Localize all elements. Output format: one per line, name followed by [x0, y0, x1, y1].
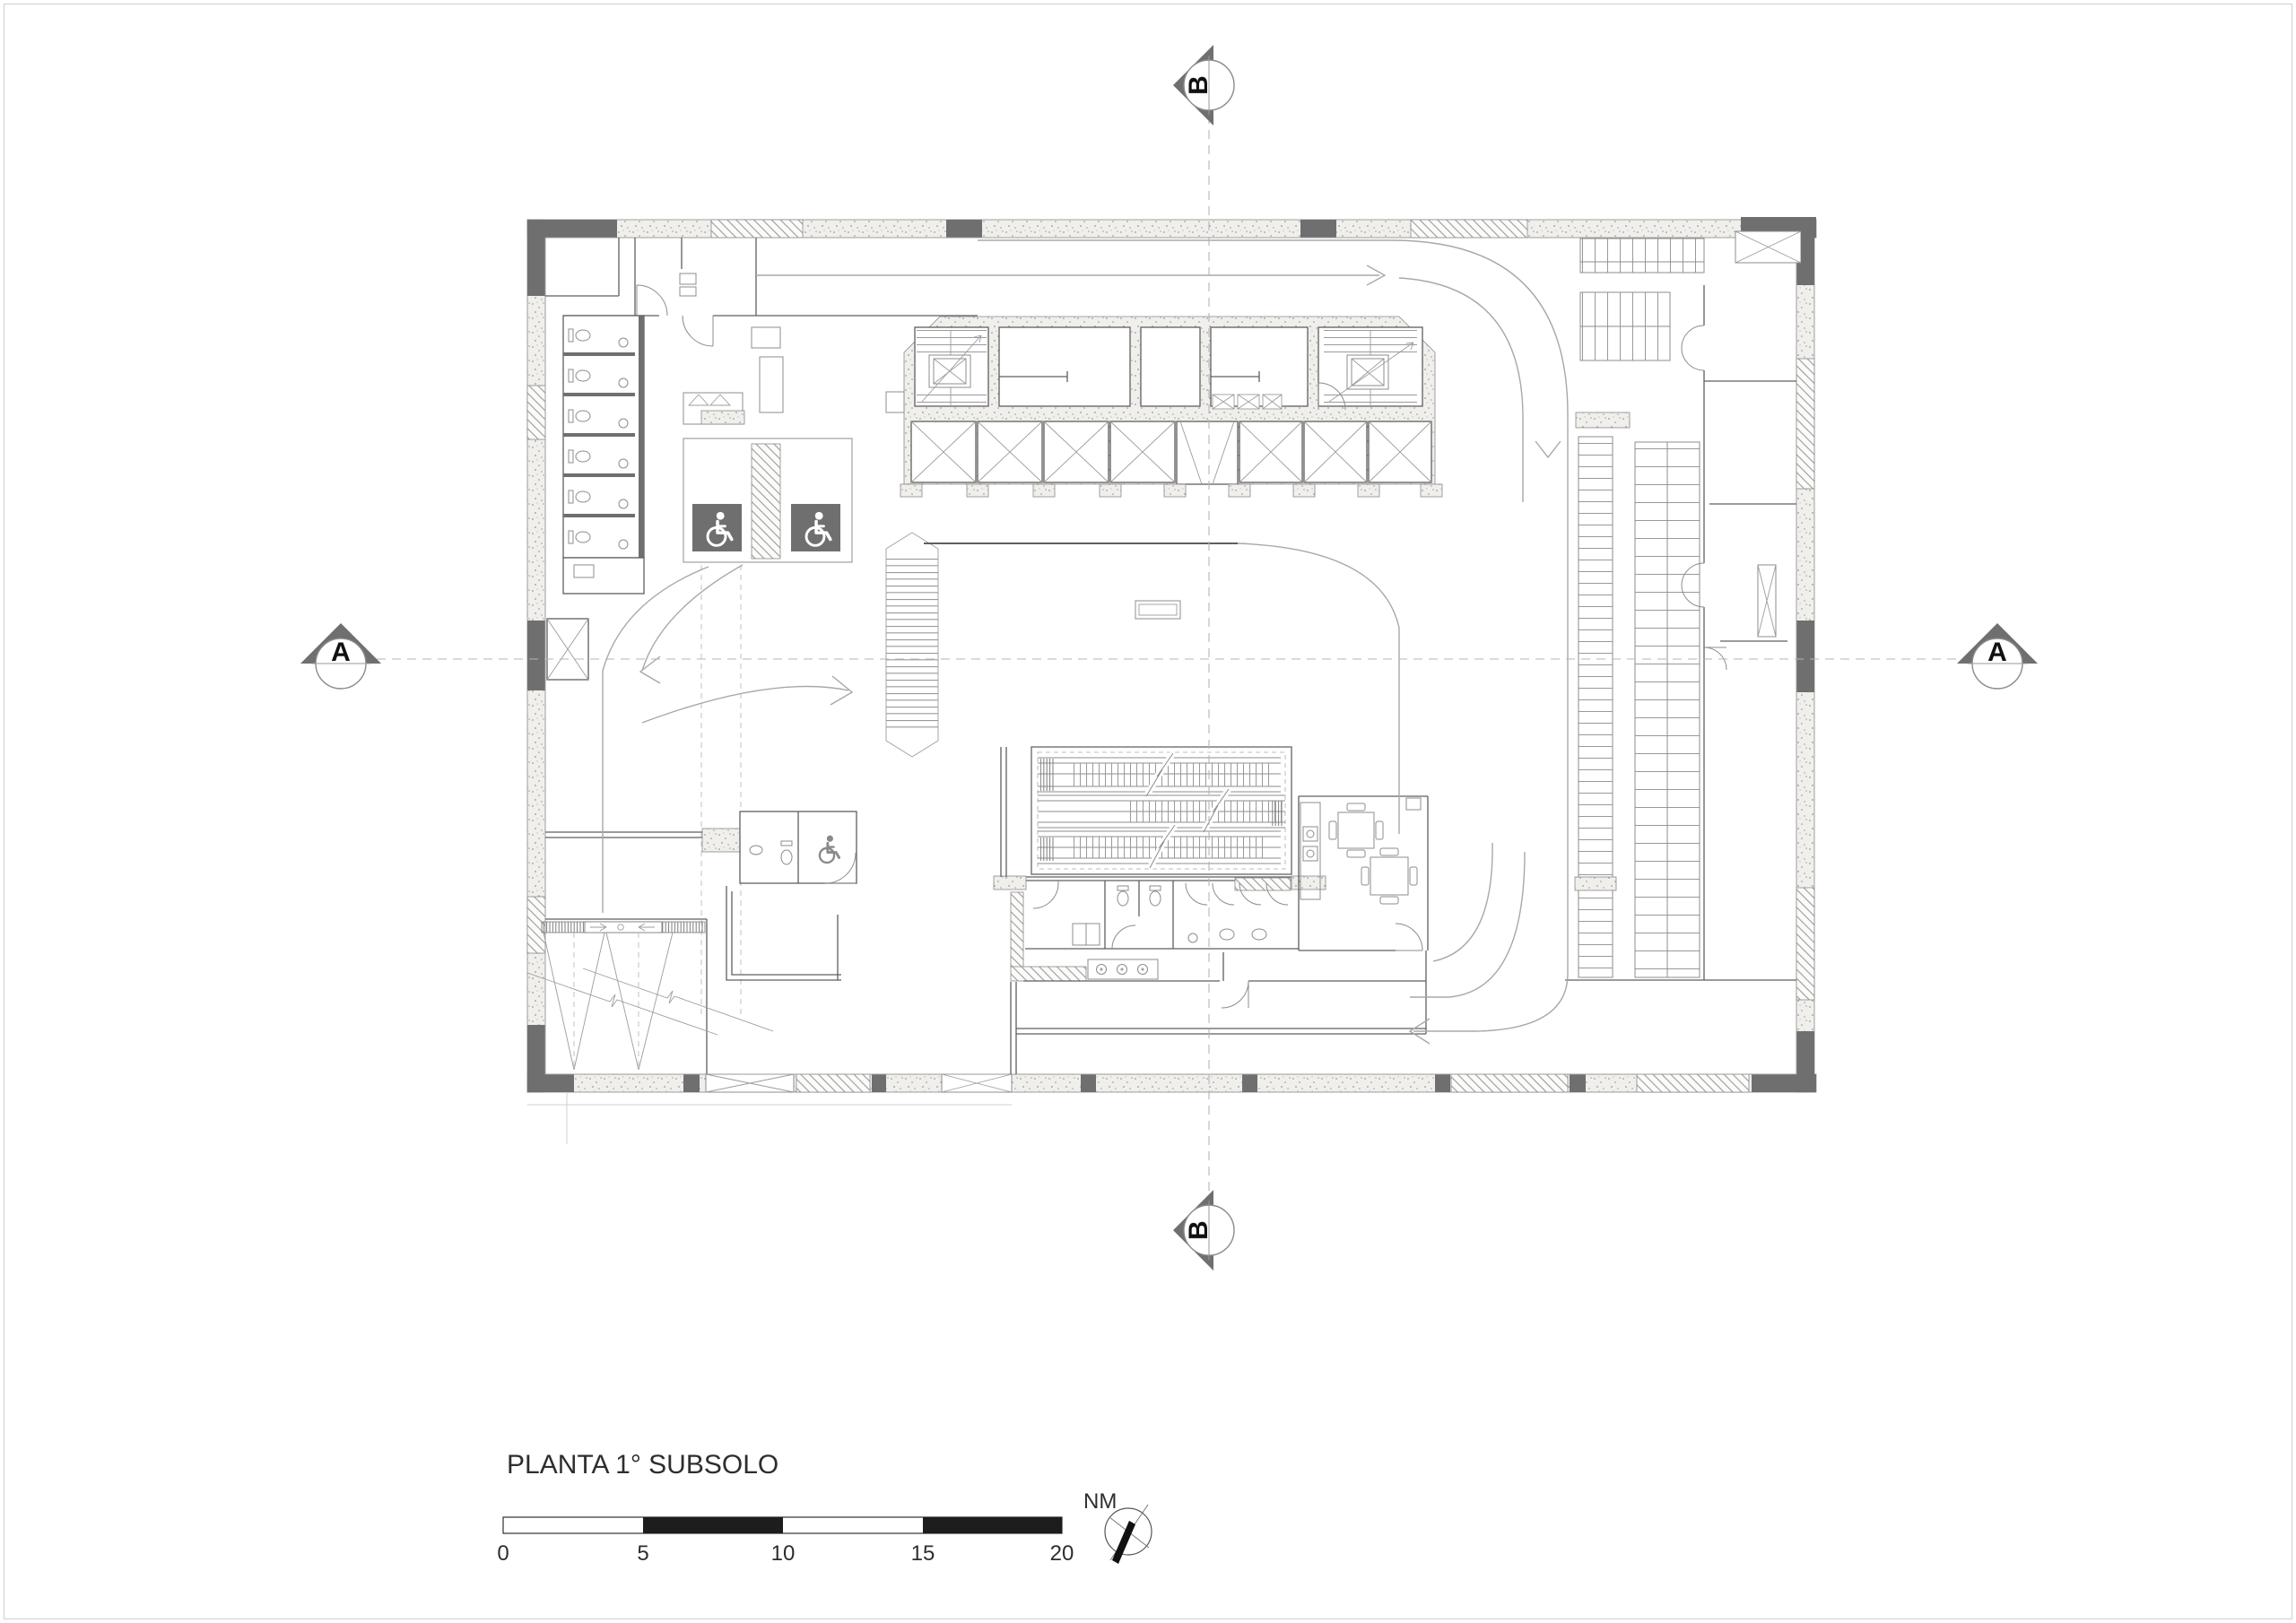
- escalators: [1031, 747, 1291, 874]
- section-marker-a-left: A: [300, 623, 381, 689]
- door-arc: [1222, 981, 1248, 1008]
- plan-title: PLANTA 1° SUBSOLO: [507, 1450, 778, 1480]
- crosswalk: [886, 533, 938, 757]
- section-marker-b-bottom: B: [1173, 1190, 1234, 1271]
- ventilation-shafts: [527, 919, 773, 1074]
- scale-tick: 20: [1050, 1541, 1074, 1566]
- right-rooms: [1682, 231, 1814, 980]
- sink: [1406, 798, 1421, 810]
- north-arrow-icon: NM: [1083, 1489, 1152, 1564]
- drawing-sheet: B B A A PLANTA 1° SUBSOLO 0 5 10 15 20 N…: [0, 0, 2296, 1623]
- scale-tick: 0: [497, 1541, 509, 1566]
- floor-plan-canvas: B B A A PLANTA 1° SUBSOLO 0 5 10 15 20 N…: [0, 0, 2296, 1623]
- table-with-chairs: [1329, 803, 1383, 857]
- scale-tick: 5: [637, 1541, 648, 1566]
- bike-rack: [1578, 437, 1613, 977]
- scale-tick: 10: [771, 1541, 796, 1566]
- scale-bar: 0 5 10 15 20: [497, 1517, 1074, 1566]
- door-arc: [637, 285, 667, 316]
- benches: [1213, 395, 1282, 409]
- section-label: A: [331, 638, 351, 667]
- hatched-walkway: [752, 444, 780, 559]
- legend: PLANTA 1° SUBSOLO 0 5 10 15 20 NM: [497, 1450, 1152, 1566]
- section-label: A: [1987, 638, 2007, 667]
- door-arc: [1396, 924, 1422, 950]
- arrow-right: [831, 676, 852, 705]
- accessible-parking-bays: [683, 327, 852, 1018]
- break-room: [1299, 796, 1428, 950]
- scale-tick: 15: [911, 1541, 935, 1566]
- elevator-bank: [900, 421, 1442, 497]
- section-label: B: [1184, 75, 1213, 95]
- north-label: NM: [1083, 1489, 1117, 1514]
- partition: [1001, 747, 1006, 877]
- section-lines: [377, 115, 1971, 1200]
- left-duct-shaft: [547, 619, 588, 680]
- restrooms: [994, 876, 1326, 981]
- pier-stubs: [900, 484, 1442, 497]
- column-planter: [1135, 601, 1180, 619]
- section-marker-a-right: A: [1957, 623, 2038, 689]
- section-label: B: [1184, 1220, 1213, 1240]
- double-door: [1682, 325, 1704, 370]
- wc-stalls: [563, 316, 644, 594]
- arrow-left: [640, 656, 660, 683]
- toilets: [1118, 886, 1266, 942]
- grade-lines: [527, 1092, 1012, 1144]
- door-arc: [683, 316, 713, 346]
- equipment: [760, 357, 783, 412]
- table-with-chairs: [1361, 848, 1417, 904]
- door-arc: [1033, 881, 1058, 908]
- section-marker-b-top: B: [1173, 45, 1234, 126]
- core-block: [886, 317, 1442, 619]
- equipment: [752, 327, 780, 348]
- arrow-down: [1535, 441, 1561, 457]
